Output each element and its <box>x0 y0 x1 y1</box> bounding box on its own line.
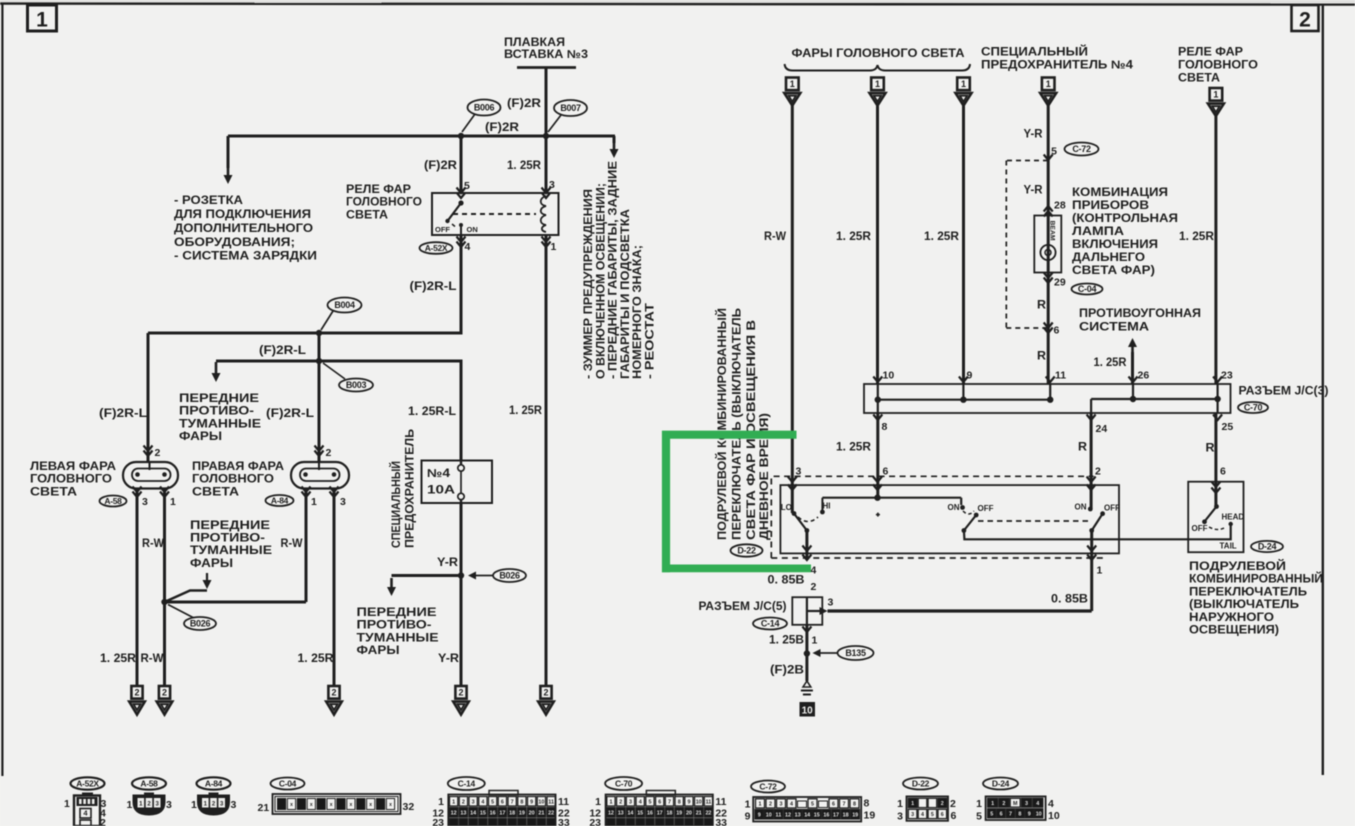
svg-text:ОБОРУДОВАНИЯ;: ОБОРУДОВАНИЯ; <box>174 237 295 249</box>
svg-text:1: 1 <box>191 799 197 811</box>
svg-text:8: 8 <box>882 421 888 433</box>
svg-text:1. 25R: 1. 25R <box>507 160 542 172</box>
svg-text:C-04: C-04 <box>279 779 297 789</box>
svg-text:16: 16 <box>490 810 496 816</box>
svg-text:7: 7 <box>1009 811 1012 817</box>
svg-text:НАРУЖНОГО: НАРУЖНОГО <box>1189 612 1274 624</box>
svg-text:1: 1 <box>609 799 612 805</box>
svg-text:11: 11 <box>715 796 726 808</box>
svg-text:B135: B135 <box>845 648 866 658</box>
svg-text:20: 20 <box>686 810 692 816</box>
svg-text:5: 5 <box>976 811 982 823</box>
svg-text:1: 1 <box>790 79 795 89</box>
svg-text:17: 17 <box>499 810 505 816</box>
svg-text:3: 3 <box>911 812 914 818</box>
svg-text:20: 20 <box>529 810 535 816</box>
svg-text:OFF: OFF <box>435 225 450 234</box>
svg-text:Y-R: Y-R <box>1024 185 1044 197</box>
svg-text:0. 85B: 0. 85B <box>1051 594 1088 606</box>
svg-text:НОМЕРНОГО ЗНАКА;: НОМЕРНОГО ЗНАКА; <box>632 245 644 379</box>
svg-text:3: 3 <box>340 496 346 508</box>
svg-text:ДАЛЬНЕГО: ДАЛЬНЕГО <box>1072 252 1145 264</box>
svg-text:C-70: C-70 <box>1244 403 1263 413</box>
svg-text:2: 2 <box>1002 801 1005 807</box>
svg-text:x: x <box>310 802 313 808</box>
svg-text:РАЗЪЕМ J/C(3): РАЗЪЕМ J/C(3) <box>1239 386 1329 398</box>
svg-text:ТУМАННЫЕ: ТУМАННЫЕ <box>357 632 439 644</box>
svg-text:HI: HI <box>823 502 831 511</box>
svg-text:R-W: R-W <box>141 653 164 665</box>
svg-text:(F)2B: (F)2B <box>770 665 804 677</box>
svg-text:15: 15 <box>637 810 643 816</box>
svg-text:(F)2R-L: (F)2R-L <box>99 408 147 420</box>
svg-text:ГОЛОВНОГО: ГОЛОВНОГО <box>192 474 274 486</box>
svg-text:№4: №4 <box>427 468 451 480</box>
svg-text:R-W: R-W <box>764 231 786 243</box>
svg-text:ТУМАННЫЕ: ТУМАННЫЕ <box>179 418 261 430</box>
svg-text:5: 5 <box>811 802 814 808</box>
svg-text:1: 1 <box>36 9 48 32</box>
svg-text:OFF: OFF <box>1104 504 1120 513</box>
svg-text:ЛЕВАЯ ФАРА: ЛЕВАЯ ФАРА <box>30 461 116 473</box>
svg-text:22: 22 <box>705 810 711 816</box>
svg-text:1. 25R: 1. 25R <box>100 653 137 665</box>
svg-text:18: 18 <box>666 810 672 816</box>
svg-text:BEAM: BEAM <box>1049 221 1056 241</box>
svg-text:C-14: C-14 <box>761 619 780 629</box>
svg-text:ГОЛОВНОГО: ГОЛОВНОГО <box>1178 60 1258 72</box>
svg-text:10: 10 <box>696 799 702 805</box>
svg-text:4: 4 <box>811 565 817 577</box>
svg-text:ГОЛОВНОГО: ГОЛОВНОГО <box>30 474 112 486</box>
svg-text:(F)2R: (F)2R <box>485 122 520 134</box>
svg-text:17: 17 <box>833 812 839 818</box>
svg-text:19: 19 <box>519 810 525 816</box>
svg-text:6: 6 <box>1000 811 1003 817</box>
svg-text:(F)2R-L: (F)2R-L <box>266 408 314 420</box>
svg-text:ФАРЫ ГОЛОВНОГО СВЕТА: ФАРЫ ГОЛОВНОГО СВЕТА <box>792 48 965 60</box>
svg-text:6: 6 <box>1220 466 1226 478</box>
svg-text:4: 4 <box>1048 798 1054 810</box>
svg-text:11: 11 <box>558 796 569 808</box>
svg-text:3: 3 <box>629 799 632 805</box>
svg-text:ПРОТИВО-: ПРОТИВО- <box>179 406 254 418</box>
svg-text:ON: ON <box>948 503 960 512</box>
svg-text:B004: B004 <box>334 300 355 310</box>
svg-text:24: 24 <box>1096 423 1108 435</box>
svg-text:ВСТАВКА №3: ВСТАВКА №3 <box>504 49 588 61</box>
svg-text:1: 1 <box>452 799 455 805</box>
svg-text:12: 12 <box>451 810 457 816</box>
svg-text:33: 33 <box>715 817 727 826</box>
svg-text:B026: B026 <box>190 619 211 629</box>
svg-text:ФАРЫ: ФАРЫ <box>190 558 233 570</box>
svg-text:19: 19 <box>852 812 858 818</box>
svg-text:23: 23 <box>589 817 601 826</box>
svg-text:21: 21 <box>538 810 544 816</box>
svg-text:29: 29 <box>1054 277 1066 289</box>
svg-text:26: 26 <box>1138 370 1150 382</box>
svg-text:2: 2 <box>162 688 167 698</box>
svg-text:ON: ON <box>467 225 478 234</box>
svg-text:5: 5 <box>990 811 993 817</box>
svg-text:10A: 10A <box>427 485 455 497</box>
svg-text:7: 7 <box>511 799 514 805</box>
svg-text:14: 14 <box>627 810 633 816</box>
svg-text:9: 9 <box>530 799 533 805</box>
svg-text:- СИСТЕМА ЗАРЯДКИ: - СИСТЕМА ЗАРЯДКИ <box>174 251 317 263</box>
svg-text:8: 8 <box>864 798 870 810</box>
svg-text:ПЕРЕКЛЮЧАТЕЛЬ (ВЫКЛЮЧАТЕЛЬ: ПЕРЕКЛЮЧАТЕЛЬ (ВЫКЛЮЧАТЕЛЬ <box>732 308 744 540</box>
svg-text:КОМБИНИРОВАННЫЙ: КОМБИНИРОВАННЫЙ <box>1189 573 1323 586</box>
svg-text:C-72: C-72 <box>1072 144 1091 154</box>
svg-text:ДЛЯ ПОДКЛЮЧЕНИЯ: ДЛЯ ПОДКЛЮЧЕНИЯ <box>174 209 311 221</box>
svg-text:0. 85B: 0. 85B <box>768 575 805 587</box>
svg-text:КОМБИНАЦИЯ: КОМБИНАЦИЯ <box>1072 187 1168 199</box>
svg-text:3: 3 <box>780 802 783 808</box>
svg-text:1: 1 <box>745 799 751 811</box>
svg-text:ON: ON <box>1075 503 1087 512</box>
svg-text:5: 5 <box>931 812 934 818</box>
svg-text:23: 23 <box>432 817 444 826</box>
svg-text:2: 2 <box>543 688 548 698</box>
svg-text:2: 2 <box>155 447 161 459</box>
svg-text:23: 23 <box>1221 370 1233 382</box>
svg-text:(F)2R-L: (F)2R-L <box>259 345 306 357</box>
svg-text:СВЕТА: СВЕТА <box>192 486 239 498</box>
svg-text:ПОДРУЛЕВОЙ КОМБИНИРОВАННЫЙ: ПОДРУЛЕВОЙ КОМБИНИРОВАННЫЙ <box>716 308 729 540</box>
svg-text:СИСТЕМА: СИСТЕМА <box>1079 322 1149 334</box>
svg-text:10: 10 <box>766 812 772 818</box>
svg-text:10: 10 <box>538 799 544 805</box>
svg-text:3: 3 <box>1025 801 1028 807</box>
svg-text:1. 25R: 1. 25R <box>1094 357 1128 369</box>
svg-text:14: 14 <box>470 810 476 816</box>
svg-text:Y-R: Y-R <box>1024 129 1044 141</box>
svg-text:10: 10 <box>1036 811 1042 817</box>
svg-text:ПРИБОРОВ: ПРИБОРОВ <box>1072 200 1149 212</box>
svg-text:3: 3 <box>897 811 903 823</box>
svg-text:1: 1 <box>897 798 903 810</box>
svg-text:4: 4 <box>639 799 642 805</box>
svg-text:25: 25 <box>1222 421 1234 433</box>
svg-text:РЕЛЕ ФАР: РЕЛЕ ФАР <box>1178 47 1243 59</box>
svg-text:1: 1 <box>170 496 176 508</box>
svg-text:8: 8 <box>678 799 681 805</box>
svg-text:13: 13 <box>618 810 624 816</box>
svg-text:R: R <box>1037 351 1047 363</box>
svg-text:(F)2R: (F)2R <box>507 98 542 110</box>
svg-text:РАЗЪЕМ J/C(5): РАЗЪЕМ J/C(5) <box>699 601 787 613</box>
svg-text:4: 4 <box>465 241 471 253</box>
svg-text:ФАРЫ: ФАРЫ <box>357 645 400 657</box>
svg-text:A-58: A-58 <box>140 779 158 789</box>
svg-text:32: 32 <box>403 801 415 813</box>
svg-text:СПЕЦИАЛЬНЫЙ: СПЕЦИАЛЬНЫЙ <box>390 461 403 548</box>
svg-text:ФАРЫ: ФАРЫ <box>179 431 222 443</box>
svg-text:- ЗУММЕР ПРЕДУПРЕЖДЕНИЯ: - ЗУММЕР ПРЕДУПРЕЖДЕНИЯ <box>583 189 595 379</box>
svg-text:5: 5 <box>491 799 494 805</box>
svg-text:- РЕОСТАТ: - РЕОСТАТ <box>645 303 657 379</box>
svg-text:1: 1 <box>911 801 914 807</box>
svg-text:A-84: A-84 <box>271 496 289 506</box>
svg-text:1: 1 <box>991 801 994 807</box>
svg-text:6: 6 <box>941 812 944 818</box>
svg-text:11: 11 <box>548 799 554 805</box>
svg-text:9: 9 <box>758 812 761 818</box>
svg-text:C-04: C-04 <box>1078 284 1097 294</box>
svg-text:B007: B007 <box>560 103 581 113</box>
svg-text:1. 25R: 1. 25R <box>298 653 335 665</box>
svg-text:2: 2 <box>462 799 465 805</box>
svg-text:ПЛАВКАЯ: ПЛАВКАЯ <box>504 37 565 49</box>
svg-text:4: 4 <box>1036 801 1039 807</box>
svg-text:R: R <box>1206 443 1216 455</box>
svg-text:(F)2R: (F)2R <box>424 160 458 172</box>
svg-text:8: 8 <box>853 802 856 808</box>
svg-text:2: 2 <box>941 801 944 807</box>
svg-text:15: 15 <box>814 812 820 818</box>
svg-text:2: 2 <box>811 581 817 593</box>
svg-text:B003: B003 <box>346 380 367 390</box>
svg-text:1. 25R: 1. 25R <box>1179 231 1215 243</box>
svg-text:C-72: C-72 <box>759 782 777 792</box>
svg-text:ПЕРЕДНИЕ: ПЕРЕДНИЕ <box>179 393 259 405</box>
svg-text:D-22: D-22 <box>737 546 756 556</box>
svg-text:1: 1 <box>595 796 601 808</box>
svg-text:19: 19 <box>676 810 682 816</box>
svg-text:1: 1 <box>311 496 317 508</box>
svg-text:3: 3 <box>472 799 475 805</box>
svg-text:1: 1 <box>875 79 880 89</box>
svg-text:ПЕРЕДНИЕ: ПЕРЕДНИЕ <box>190 520 270 532</box>
svg-text:18: 18 <box>843 812 849 818</box>
svg-text:15: 15 <box>480 810 486 816</box>
svg-text:ДОПОЛНИТЕЛЬНОГО: ДОПОЛНИТЕЛЬНОГО <box>174 223 313 235</box>
svg-text:1. 25R: 1. 25R <box>836 231 872 243</box>
svg-text:1: 1 <box>1097 565 1103 577</box>
svg-text:x: x <box>290 802 293 808</box>
svg-text:16: 16 <box>647 810 653 816</box>
svg-text:2: 2 <box>1095 466 1101 478</box>
svg-text:2: 2 <box>619 799 622 805</box>
svg-text:x: x <box>369 802 372 808</box>
svg-text:СВЕТА: СВЕТА <box>30 486 77 498</box>
svg-text:1: 1 <box>812 635 818 647</box>
svg-text:ПРОТИВОУГОННАЯ: ПРОТИВОУГОННАЯ <box>1079 308 1201 320</box>
svg-text:1: 1 <box>1213 90 1218 100</box>
svg-text:6: 6 <box>1054 325 1060 337</box>
svg-text:6: 6 <box>832 802 835 808</box>
svg-text:Y-R: Y-R <box>438 653 460 665</box>
svg-text:D-24: D-24 <box>992 779 1010 789</box>
svg-text:3: 3 <box>142 496 148 508</box>
svg-text:x: x <box>330 802 333 808</box>
svg-text:2: 2 <box>326 447 332 459</box>
svg-text:6: 6 <box>951 810 957 822</box>
svg-text:21: 21 <box>258 802 270 814</box>
svg-text:1: 1 <box>961 79 966 89</box>
svg-text:OFF: OFF <box>978 504 994 513</box>
svg-text:R: R <box>1078 442 1088 454</box>
svg-text:10: 10 <box>1048 810 1060 822</box>
svg-text:ПРОТИВО-: ПРОТИВО- <box>190 533 265 545</box>
svg-text:1: 1 <box>759 802 762 808</box>
svg-text:A-58: A-58 <box>104 496 122 506</box>
svg-text:14: 14 <box>804 812 810 818</box>
svg-text:РЕЛЕ ФАР: РЕЛЕ ФАР <box>346 184 411 196</box>
svg-text:3: 3 <box>166 799 172 811</box>
svg-text:C-70: C-70 <box>615 779 633 789</box>
svg-text:B026: B026 <box>499 571 520 581</box>
svg-text:33: 33 <box>558 817 570 826</box>
svg-text:ПРАВАЯ ФАРА: ПРАВАЯ ФАРА <box>192 461 284 473</box>
svg-text:1. 25B: 1. 25B <box>769 635 804 647</box>
svg-text:ПЕРЕДНИЕ: ПЕРЕДНИЕ <box>357 607 437 619</box>
svg-text:СПЕЦИАЛЬНЫЙ: СПЕЦИАЛЬНЫЙ <box>981 46 1088 59</box>
svg-text:СВЕТА ФАР И ОСВЕЩЕНИЯ В: СВЕТА ФАР И ОСВЕЩЕНИЯ В <box>746 320 758 540</box>
svg-text:OFF: OFF <box>1192 524 1208 533</box>
svg-text:17: 17 <box>657 810 663 816</box>
svg-text:2: 2 <box>950 798 956 810</box>
svg-text:13: 13 <box>460 810 466 816</box>
svg-text:СВЕТА: СВЕТА <box>1178 73 1220 85</box>
svg-text:4: 4 <box>921 812 924 818</box>
svg-text:6: 6 <box>501 799 504 805</box>
svg-text:8: 8 <box>1018 811 1021 817</box>
svg-text:LO: LO <box>781 503 792 512</box>
svg-text:1: 1 <box>976 798 982 810</box>
svg-text:A-52X: A-52X <box>76 779 99 789</box>
svg-text:2: 2 <box>769 802 772 808</box>
svg-text:8: 8 <box>520 799 523 805</box>
svg-text:1: 1 <box>127 799 133 811</box>
svg-text:11: 11 <box>1055 370 1066 382</box>
svg-text:x: x <box>389 802 392 808</box>
svg-text:9: 9 <box>967 370 973 382</box>
svg-text:4: 4 <box>790 802 793 808</box>
svg-text:ПРОТИВО-: ПРОТИВО- <box>357 620 432 632</box>
svg-text:A-84: A-84 <box>205 779 223 789</box>
svg-text:6: 6 <box>658 799 661 805</box>
svg-text:ОСВЕЩЕНИЯ): ОСВЕЩЕНИЯ) <box>1189 625 1279 637</box>
svg-text:10: 10 <box>883 370 895 382</box>
svg-text:2: 2 <box>1299 9 1311 32</box>
svg-text:R: R <box>1037 300 1047 312</box>
svg-text:1. 25R-L: 1. 25R-L <box>408 406 456 418</box>
svg-text:1. 25R: 1. 25R <box>836 442 872 454</box>
svg-text:A-52X: A-52X <box>425 243 448 253</box>
svg-text:19: 19 <box>864 810 876 822</box>
svg-text:D-22: D-22 <box>912 779 930 789</box>
svg-text:2: 2 <box>458 688 463 698</box>
svg-text:16: 16 <box>823 812 829 818</box>
svg-text:7: 7 <box>668 799 671 805</box>
svg-text:ПОДРУЛЕВОЙ: ПОДРУЛЕВОЙ <box>1189 560 1286 573</box>
svg-text:M: M <box>1013 801 1018 807</box>
svg-text:ГОЛОВНОГО: ГОЛОВНОГО <box>346 197 422 209</box>
svg-text:1: 1 <box>551 241 557 253</box>
svg-text:2: 2 <box>134 688 139 698</box>
svg-text:1. 25R: 1. 25R <box>924 231 960 243</box>
svg-text:D-24: D-24 <box>1258 542 1277 552</box>
svg-text:28: 28 <box>1054 200 1066 212</box>
svg-text:R-W: R-W <box>281 538 303 550</box>
svg-text:СВЕТА ФАР): СВЕТА ФАР) <box>1072 265 1155 277</box>
svg-text:(F)2R-L: (F)2R-L <box>410 281 457 293</box>
svg-text:18: 18 <box>509 810 515 816</box>
svg-text:2: 2 <box>331 688 336 698</box>
svg-text:5: 5 <box>464 180 470 192</box>
svg-text:R-W: R-W <box>142 538 164 550</box>
svg-text:13: 13 <box>795 812 801 818</box>
svg-text:9: 9 <box>687 799 690 805</box>
svg-text:ПЕРЕКЛЮЧАТЕЛЬ: ПЕРЕКЛЮЧАТЕЛЬ <box>1189 586 1307 598</box>
svg-text:- ПЕРЕДНИЕ ГАБАРИТЫ, ЗАДНИЕ: - ПЕРЕДНИЕ ГАБАРИТЫ, ЗАДНИЕ <box>608 161 620 379</box>
svg-text:1. 25R: 1. 25R <box>509 405 543 417</box>
svg-text:C-14: C-14 <box>458 779 476 789</box>
svg-text:12: 12 <box>608 810 614 816</box>
svg-text:10: 10 <box>802 706 814 717</box>
svg-text:9: 9 <box>1028 811 1031 817</box>
svg-text:22: 22 <box>548 810 554 816</box>
svg-text:Y-R: Y-R <box>437 557 459 569</box>
svg-text:11: 11 <box>776 812 782 818</box>
svg-text:21: 21 <box>696 810 702 816</box>
svg-text:7: 7 <box>843 802 846 808</box>
svg-text:ЛАМПА: ЛАМПА <box>1072 226 1124 238</box>
svg-text:(ВЫКЛЮЧАТЕЛЬ: (ВЫКЛЮЧАТЕЛЬ <box>1189 599 1299 611</box>
svg-text:B006: B006 <box>474 103 495 113</box>
svg-text:x: x <box>350 802 353 808</box>
svg-text:О ВКЛЮЧЕННОМ ОСВЕЩЕНИИ;: О ВКЛЮЧЕННОМ ОСВЕЩЕНИИ; <box>595 183 607 379</box>
svg-text:- РОЗЕТКА: - РОЗЕТКА <box>174 195 243 207</box>
svg-text:5: 5 <box>648 799 651 805</box>
svg-text:4: 4 <box>481 799 484 805</box>
svg-text:12: 12 <box>785 812 791 818</box>
svg-text:3: 3 <box>828 597 834 609</box>
svg-text:9: 9 <box>745 811 751 823</box>
svg-text:(КОНТРОЛЬНАЯ: (КОНТРОЛЬНАЯ <box>1072 213 1178 225</box>
svg-text:TAIL: TAIL <box>1220 542 1237 551</box>
svg-text:1: 1 <box>64 798 70 810</box>
svg-text:СВЕТА: СВЕТА <box>346 209 388 221</box>
svg-text:1: 1 <box>1046 79 1051 89</box>
svg-text:ПРЕДОХРАНИТЕЛЬ №4: ПРЕДОХРАНИТЕЛЬ №4 <box>981 60 1134 72</box>
svg-text:3: 3 <box>231 799 237 811</box>
svg-text:HEAD: HEAD <box>1222 513 1245 522</box>
svg-text:11: 11 <box>706 799 712 805</box>
svg-text:ВКЛЮЧЕНИЯ: ВКЛЮЧЕНИЯ <box>1072 239 1158 251</box>
svg-text:ГАБАРИТЫ И ПОДСВЕТКА: ГАБАРИТЫ И ПОДСВЕТКА <box>620 209 632 379</box>
svg-text:ТУМАННЫЕ: ТУМАННЫЕ <box>190 545 272 557</box>
svg-text:1: 1 <box>438 796 444 808</box>
svg-text:ПРЕДОХРАНИТЕЛЬ: ПРЕДОХРАНИТЕЛЬ <box>405 429 417 548</box>
